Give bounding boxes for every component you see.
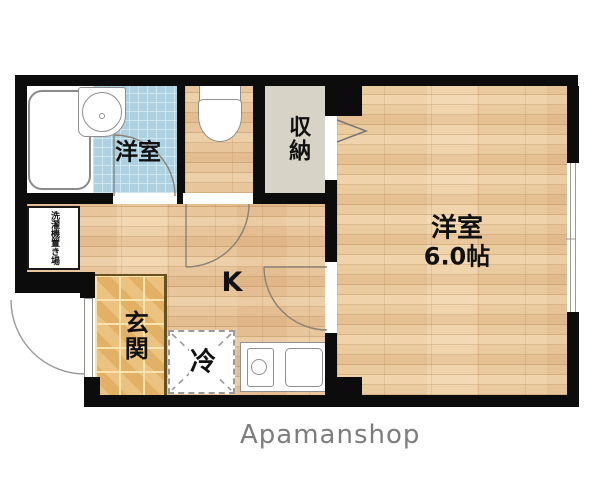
main-room-size: 6.0帖 [424, 243, 491, 269]
bath-room-label: 洋室 [115, 140, 161, 165]
brand-logo: Apamanshop [240, 420, 420, 450]
kitchen-door-arc [264, 267, 327, 330]
closet-door-marker [337, 120, 366, 142]
main-room-label: 洋室 6.0帖 [424, 215, 491, 270]
plan-linework [0, 0, 600, 480]
front-door-arc [11, 300, 85, 374]
floor-plan: 洋室 洋室 6.0帖 収納 K 玄関 冷 洗濯機置き場 Apamanshop [0, 0, 600, 480]
toilet-door-arc [186, 204, 249, 267]
entrance-label: 玄関 [121, 310, 147, 362]
main-room-name: 洋室 [424, 215, 491, 244]
kitchen-label: K [222, 268, 243, 298]
refrigerator-label: 冷 [189, 349, 217, 378]
closet-label: 収納 [285, 115, 309, 163]
window-glass-lines [571, 163, 576, 312]
laundry-label: 洗濯機置き場 [48, 211, 58, 265]
